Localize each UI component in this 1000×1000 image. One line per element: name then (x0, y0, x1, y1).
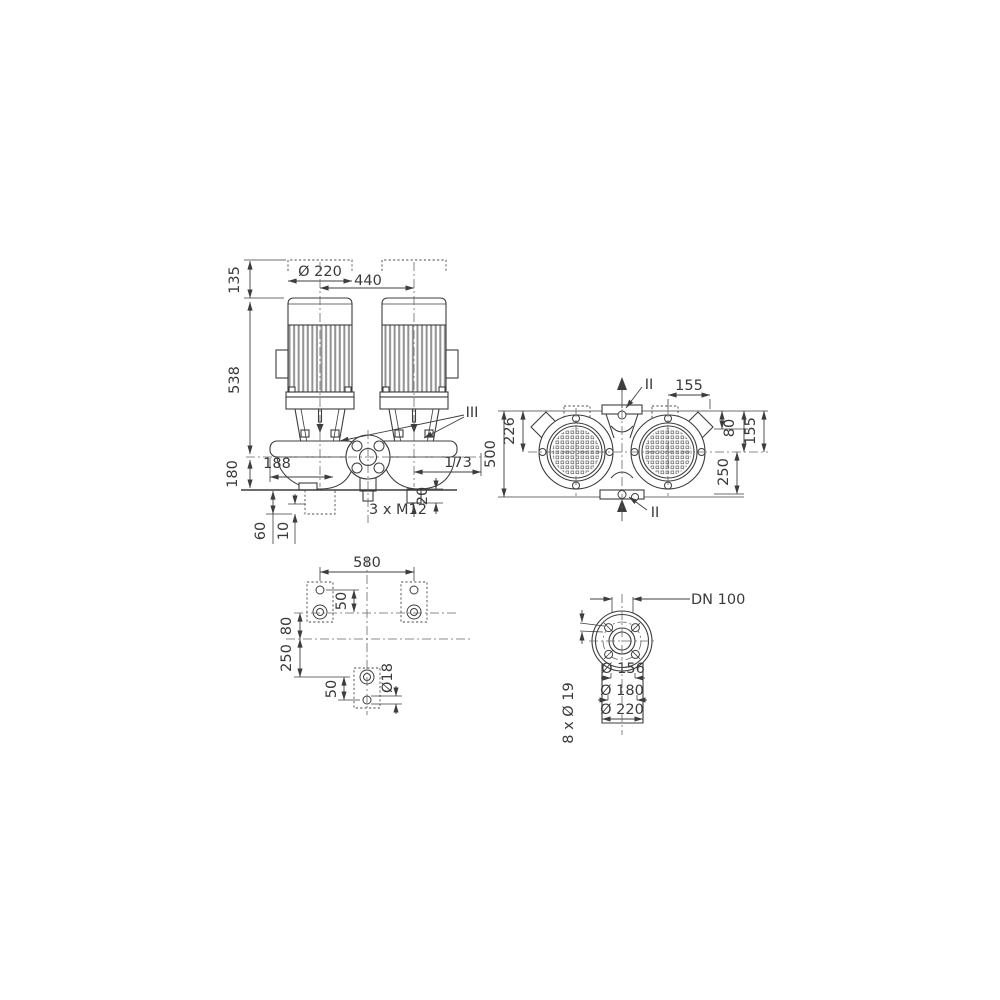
dim-port-to-end: 155 (675, 378, 703, 394)
dim-edge-offset: 155 (743, 417, 759, 445)
flange-hole (352, 463, 362, 473)
dim-hole-pitch-upper: 50 (334, 592, 350, 610)
dim-pump-spacing: 440 (354, 273, 382, 289)
dim-bolt-holes: 8 x Ø 19 (561, 682, 577, 744)
anchor-hole (410, 586, 418, 594)
anchor-bolt-inner (411, 609, 418, 616)
anchor-bolt-inner (317, 609, 324, 616)
anchor-hole (316, 586, 324, 594)
flange-bolt (289, 387, 295, 392)
top-view-dimensions: 500 226 155 80 155 250 (483, 378, 764, 497)
dim-nominal-bore: DN 100 (691, 592, 745, 608)
volute-foot-left (299, 483, 317, 490)
motor-left (276, 298, 354, 443)
terminal-box-left (276, 350, 288, 378)
dim-base-height: 60 (253, 522, 269, 540)
dim-envelope-height: 135 (227, 266, 243, 294)
dim-drain-thread: 3 x M12 (369, 502, 427, 518)
flow-arrow-top-icon (617, 377, 627, 390)
dimensional-drawing-canvas: 135 538 180 Ø 220 440 188 173 20 3 x M12 (0, 0, 1000, 1000)
flange-dimensions: DN 100 Ø 156 Ø 180 Ø 220 8 x Ø 19 (561, 592, 745, 744)
dim-foot-left: 188 (263, 456, 291, 472)
motor-right (380, 298, 458, 443)
dim-anchor-hole: Ø18 (380, 663, 396, 693)
foundation-dimensions: 580 50 80 250 50 Ø18 (279, 555, 414, 714)
flange-bolt (345, 387, 351, 392)
dim-base-step: 10 (276, 522, 292, 540)
dim-overall-length: 500 (483, 440, 499, 468)
dim-pump-height: 538 (227, 366, 243, 394)
dim-axis-offset: 80 (279, 617, 295, 635)
dim-hole-pitch-lower: 50 (324, 680, 340, 698)
section-label-top: II (645, 377, 654, 393)
lantern-rib (427, 409, 433, 443)
lantern-rib (301, 409, 307, 443)
section-label-bottom: II (651, 505, 660, 521)
dim-box-offset: 80 (722, 419, 738, 437)
dim-edge-to-axis: 226 (502, 417, 518, 445)
flange-hole (374, 441, 384, 451)
terminal-box-right (446, 350, 458, 378)
pump-dimensional-drawing-page: 135 538 180 Ø 220 440 188 173 20 3 x M12 (0, 0, 1000, 1000)
flange-bolt (439, 387, 445, 392)
flange-view: DN 100 Ø 156 Ø 180 Ø 220 8 x Ø 19 (561, 592, 745, 744)
volute-band-left (270, 441, 355, 457)
dim-pilot-diameter: Ø 156 (601, 661, 645, 677)
dim-axis-to-anchor: 250 (279, 644, 295, 672)
front-view: 135 538 180 Ø 220 440 188 173 20 3 x M12 (225, 260, 492, 544)
flange-hole (352, 441, 362, 451)
detail-ref-label: III (466, 405, 479, 421)
foundation-pad-dotted (305, 490, 335, 514)
dim-axis-height: 180 (225, 460, 241, 488)
top-view: II II 500 226 155 80 155 250 (483, 377, 768, 522)
flange-hole (374, 463, 384, 473)
lantern-rib (333, 409, 339, 443)
dim-axis-to-end: 250 (716, 458, 732, 486)
flange-bolt (383, 387, 389, 392)
foundation-view: 580 50 80 250 50 Ø18 (279, 555, 470, 715)
lantern-rib (395, 409, 401, 443)
